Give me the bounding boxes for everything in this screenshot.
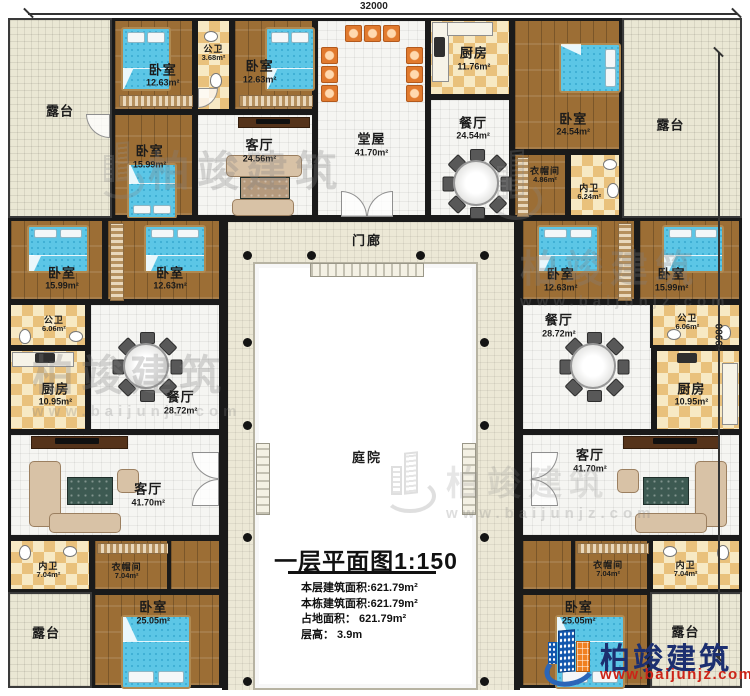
bed-icon [559,43,621,93]
terrace-top-right: 露台 [622,18,742,218]
living-room-bottom-left: 客厅41.70m² [8,432,222,538]
bed-icon [121,615,191,689]
column [243,251,252,260]
bedroom-top-3: 卧室15.99m² [112,112,195,218]
closet-bottom-left: 衣帽间7.04m² [92,538,170,592]
column [480,251,489,260]
column [243,533,252,542]
armchair-icon [617,469,639,493]
tv-icon [55,438,99,444]
chair-icon [383,25,400,42]
column [480,533,489,542]
closet-bottom-right: 衣帽间7.04m² [572,538,650,592]
bath-mid-left: 公卫6.06m² [8,302,88,348]
bath-mid-right: 公卫6.06m² [650,302,742,348]
tv-icon [256,119,290,124]
stove-icon [35,353,55,363]
dimension-width-line [28,13,737,15]
chair-icon [321,66,338,83]
column [243,338,252,347]
chair-icon [321,85,338,102]
bath-bottom-right: 内卫7.04m² [650,538,742,592]
bed-icon [662,225,724,273]
dining-room-top: 餐厅24.54m² [428,97,512,218]
courtyard-steps-right [462,443,476,515]
tv-icon [653,438,697,444]
kitchen-mid-left: 厨房10.95m² [8,348,88,432]
column [416,251,425,260]
bedroom-top-4: 卧室24.54m² [512,18,622,152]
chair-icon [345,25,362,42]
bedroom-bottom-left: 卧室25.05m² [92,592,222,688]
porch-label: 门廊 [352,230,382,249]
column [307,251,316,260]
logo-site: www.baijunjz.com [600,666,750,683]
info-line: 占地面积： 621.79m² [301,612,418,628]
chair-icon [406,47,423,64]
toilet-icon [19,545,31,560]
sink-icon [204,31,218,42]
coffee-table-icon [643,477,689,505]
hall-bottom-right [520,538,574,592]
sofa-icon [635,513,707,533]
bedroom-mid-right-2: 卧室15.99m² [637,218,742,302]
column [480,338,489,347]
wardrobe-icon [110,223,124,301]
chair-icon [406,66,423,83]
sink-icon [69,331,83,342]
terrace-bottom-left: 露台 [8,592,92,688]
plan-info-lines: 本层建筑面积:621.79m² 本栋建筑面积:621.79m² 占地面积： 62… [301,581,418,643]
bed-icon [127,163,177,219]
toilet-icon [607,183,619,198]
dining-room-mid-right: 餐厅28.72m² [520,302,654,432]
wardrobe-icon [119,95,193,107]
sink-icon [663,546,677,557]
info-line: 本层建筑面积:621.79m² [301,581,418,597]
column [480,421,489,430]
wardrobe-icon [97,543,169,554]
courtyard-label: 庭院 [352,447,382,466]
info-line: 层高： 3.9m [301,628,418,644]
courtyard-steps-left [256,443,270,515]
hall-bottom-left [168,538,222,592]
stove-icon [677,353,697,363]
living-room-top: 客厅24.56m² [195,112,315,218]
wardrobe-icon [577,543,649,554]
column [243,677,252,686]
stove-icon [434,37,445,57]
bedroom-mid-right-1: 卧室12.63m² [520,218,637,302]
coffee-table-icon [67,477,113,505]
chair-icon [321,47,338,64]
column [480,677,489,686]
bedroom-mid-left-1: 卧室15.99m² [8,218,105,302]
info-line: 本栋建筑面积:621.79m² [301,597,418,613]
toilet-icon [210,73,222,88]
chair-icon [364,25,381,42]
floor-plan-canvas: 32000 29900 门廊 庭院 露台 卧室12.63m² 公卫3.68m² … [0,0,750,696]
toilet-icon [19,329,31,344]
kitchen-counter-icon [722,363,738,425]
title-underline [288,571,436,574]
column [243,421,252,430]
bath-bottom-left: 内卫7.04m² [8,538,92,592]
sofa-icon [232,199,294,216]
main-hall: 堂屋41.70m² [315,18,428,218]
baijun-logo-icon [546,628,598,684]
living-room-bottom-right: 客厅41.70m² [520,432,742,538]
kitchen-counter-icon [447,22,493,36]
dining-room-mid-left: 餐厅28.72m² [88,302,222,432]
wardrobe-icon [517,157,529,217]
closet-top-right: 衣帽间4.86m² [512,152,568,218]
coffee-table-icon [240,177,290,199]
bed-icon [537,225,599,273]
chair-icon [406,85,423,102]
wardrobe-icon [618,223,632,301]
kitchen-top: 厨房11.76m² [428,18,512,97]
bedroom-top-1: 卧室12.63m² [112,18,195,112]
bedroom-mid-left-2: 卧室12.63m² [105,218,222,302]
sink-icon [603,159,617,170]
bath-top-right: 内卫6.24m² [568,152,622,218]
sink-icon [63,546,77,557]
kitchen-mid-right: 厨房10.95m² [654,348,742,432]
wardrobe-icon [239,95,313,107]
bedroom-top-2: 卧室12.63m² [232,18,315,112]
sofa-icon [49,513,121,533]
courtyard-steps-top [310,263,424,277]
dimension-height-line [718,52,720,658]
dimension-height-label: 29900 [714,324,725,352]
dimension-width-label: 32000 [360,1,388,12]
